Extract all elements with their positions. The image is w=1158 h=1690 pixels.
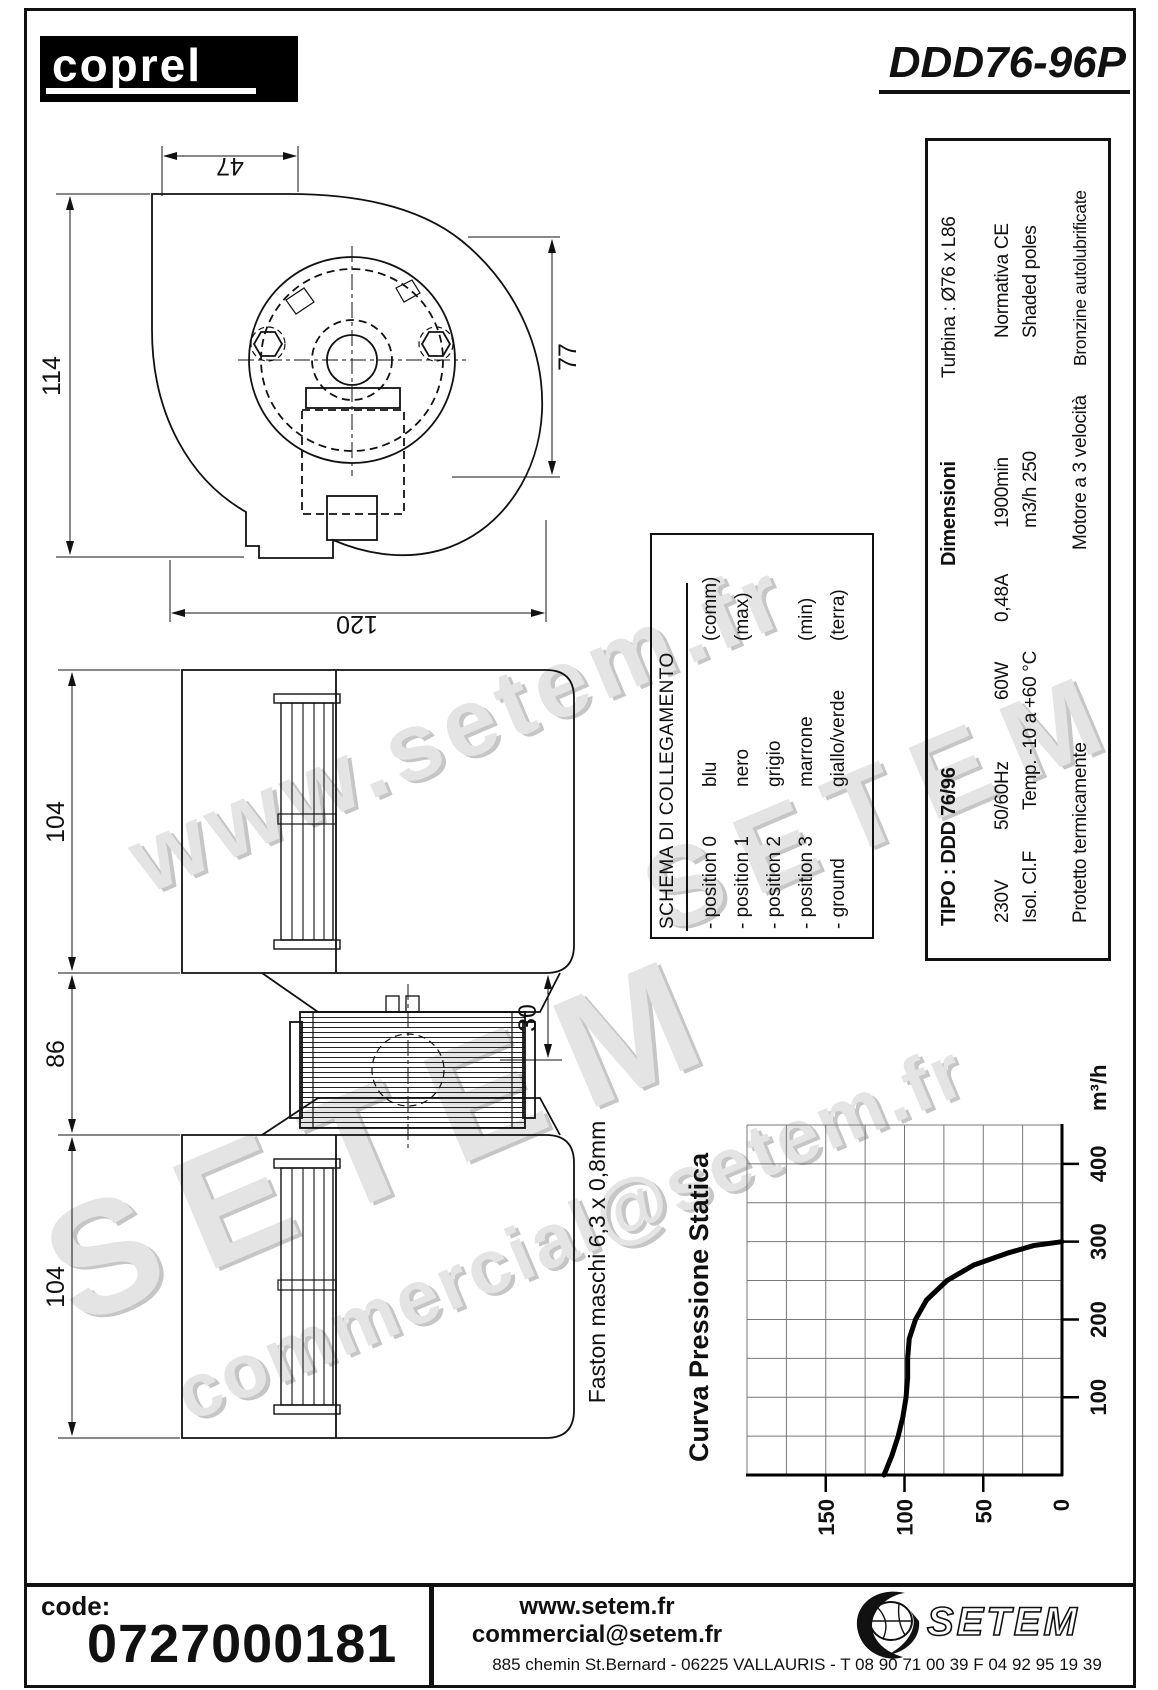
dim-label-114: 114 — [38, 356, 66, 396]
setem-logo-text: SETEM — [927, 1600, 1080, 1644]
dimension-lines-top-view — [56, 146, 560, 622]
footer-email: commercial@setem.fr — [357, 1621, 837, 1649]
dim-label-104-upper: 104 — [42, 801, 70, 843]
side-view-drawing — [182, 670, 574, 1438]
dim-label-86: 86 — [42, 1040, 70, 1068]
dim-label-104-lower: 104 — [42, 1266, 70, 1308]
dim-label-30: 30 — [514, 1004, 542, 1032]
scroll-housing-view — [152, 194, 542, 558]
dim-label-77: 77 — [554, 343, 582, 371]
dim-label-120: 120 — [336, 610, 378, 638]
footer: code: 0727000181 www.setem.fr commercial… — [24, 1584, 1136, 1688]
setem-logo: SETEM — [847, 1589, 1127, 1666]
technical-drawings: 47 114 120 77 — [0, 0, 1158, 1690]
dim-label-47: 47 — [216, 152, 244, 180]
setem-globe-icon — [857, 1592, 919, 1659]
faston-note: Faston maschi 6,3 x 0,8mm — [584, 1121, 610, 1404]
datasheet-page: { "header": { "logo_text": "coprel", "mo… — [0, 0, 1158, 1690]
footer-website: www.setem.fr — [357, 1593, 837, 1621]
code-value: 0727000181 — [87, 1613, 397, 1675]
